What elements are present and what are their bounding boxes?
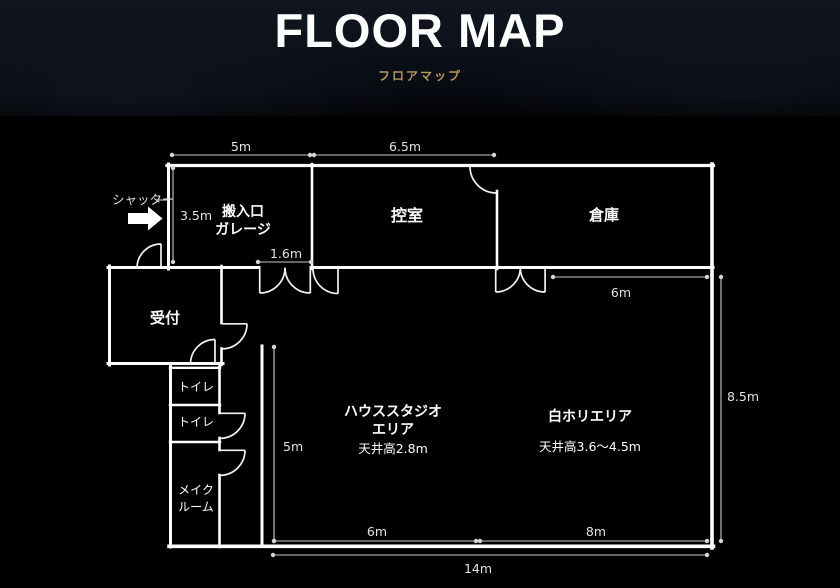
room-label-warehouse: 倉庫 — [588, 206, 619, 224]
door-arc — [260, 268, 285, 293]
dim-label: 6m — [367, 524, 387, 539]
dimension-studio-left: 5m — [272, 345, 303, 543]
dimension-top-garage: 5m — [170, 139, 312, 157]
floor-plan-section: シャッター 5m 6.5m 3.5m — [0, 116, 840, 588]
dim-label: 6m — [611, 285, 631, 300]
dimension-garage-height: 3.5m — [171, 166, 212, 264]
room-label-reception: 受付 — [150, 309, 180, 327]
room-label-makeup-2: ルーム — [178, 500, 214, 514]
door-arc — [285, 268, 310, 293]
door-arc — [470, 167, 497, 194]
room-label-house-studio-ceiling: 天井高2.8m — [358, 441, 428, 456]
floor-map-page: FLOOR MAP フロアマップ — [0, 0, 840, 588]
dimension-right-height: 8.5m — [719, 275, 759, 543]
door-arc — [191, 340, 216, 365]
room-label-white-cyc-ceiling: 天井高3.6〜4.5m — [539, 439, 641, 454]
door-arc — [222, 324, 247, 349]
room-label-garage-1: 搬入口 — [222, 203, 264, 220]
dimension-top-waiting: 6.5m — [312, 139, 496, 157]
room-label-makeup-1: メイク — [178, 483, 214, 497]
door-arc — [220, 450, 245, 475]
room-labels: 搬入口 ガレージ 控室 倉庫 受付 トイレ トイレ メイク ルーム ハウススタジ… — [150, 203, 641, 514]
room-label-toilet-2: トイレ — [178, 415, 214, 429]
dim-label: 1.6m — [270, 246, 302, 261]
door-arc — [220, 413, 245, 438]
room-label-house-studio-1: ハウススタジオ — [344, 404, 442, 420]
page-subtitle: フロアマップ — [0, 54, 840, 84]
dim-label: 8.5m — [727, 389, 759, 404]
dimension-warehouse-bottom: 6m — [551, 275, 709, 300]
dim-label: 6.5m — [389, 139, 421, 154]
shutter-marker: シャッター — [112, 192, 175, 231]
dim-label: 5m — [231, 139, 251, 154]
room-label-toilet-1: トイレ — [178, 380, 214, 394]
dimension-bottom-left: 6m — [272, 524, 478, 543]
room-label-waiting: 控室 — [391, 206, 423, 225]
dim-label: 5m — [283, 439, 303, 454]
dimension-bottom-total: 14m — [271, 553, 709, 576]
room-label-garage-2: ガレージ — [215, 222, 271, 238]
door-arc — [496, 267, 521, 292]
page-title: FLOOR MAP — [0, 0, 840, 54]
door-arc — [137, 244, 161, 268]
room-label-house-studio-2: エリア — [372, 422, 414, 438]
page-header: FLOOR MAP フロアマップ — [0, 0, 840, 116]
dimension-door-opening: 1.6m — [256, 246, 313, 264]
door-arc — [520, 267, 545, 292]
dim-label: 8m — [586, 524, 606, 539]
room-label-white-cyc: 白ホリエリア — [548, 408, 632, 425]
floor-plan-drawing: シャッター 5m 6.5m 3.5m — [0, 116, 840, 588]
dim-label: 14m — [464, 561, 492, 576]
shutter-arrow-icon — [128, 207, 163, 231]
dimension-bottom-right: 8m — [478, 524, 709, 543]
dim-label: 3.5m — [180, 208, 212, 223]
door-arc — [313, 269, 338, 294]
